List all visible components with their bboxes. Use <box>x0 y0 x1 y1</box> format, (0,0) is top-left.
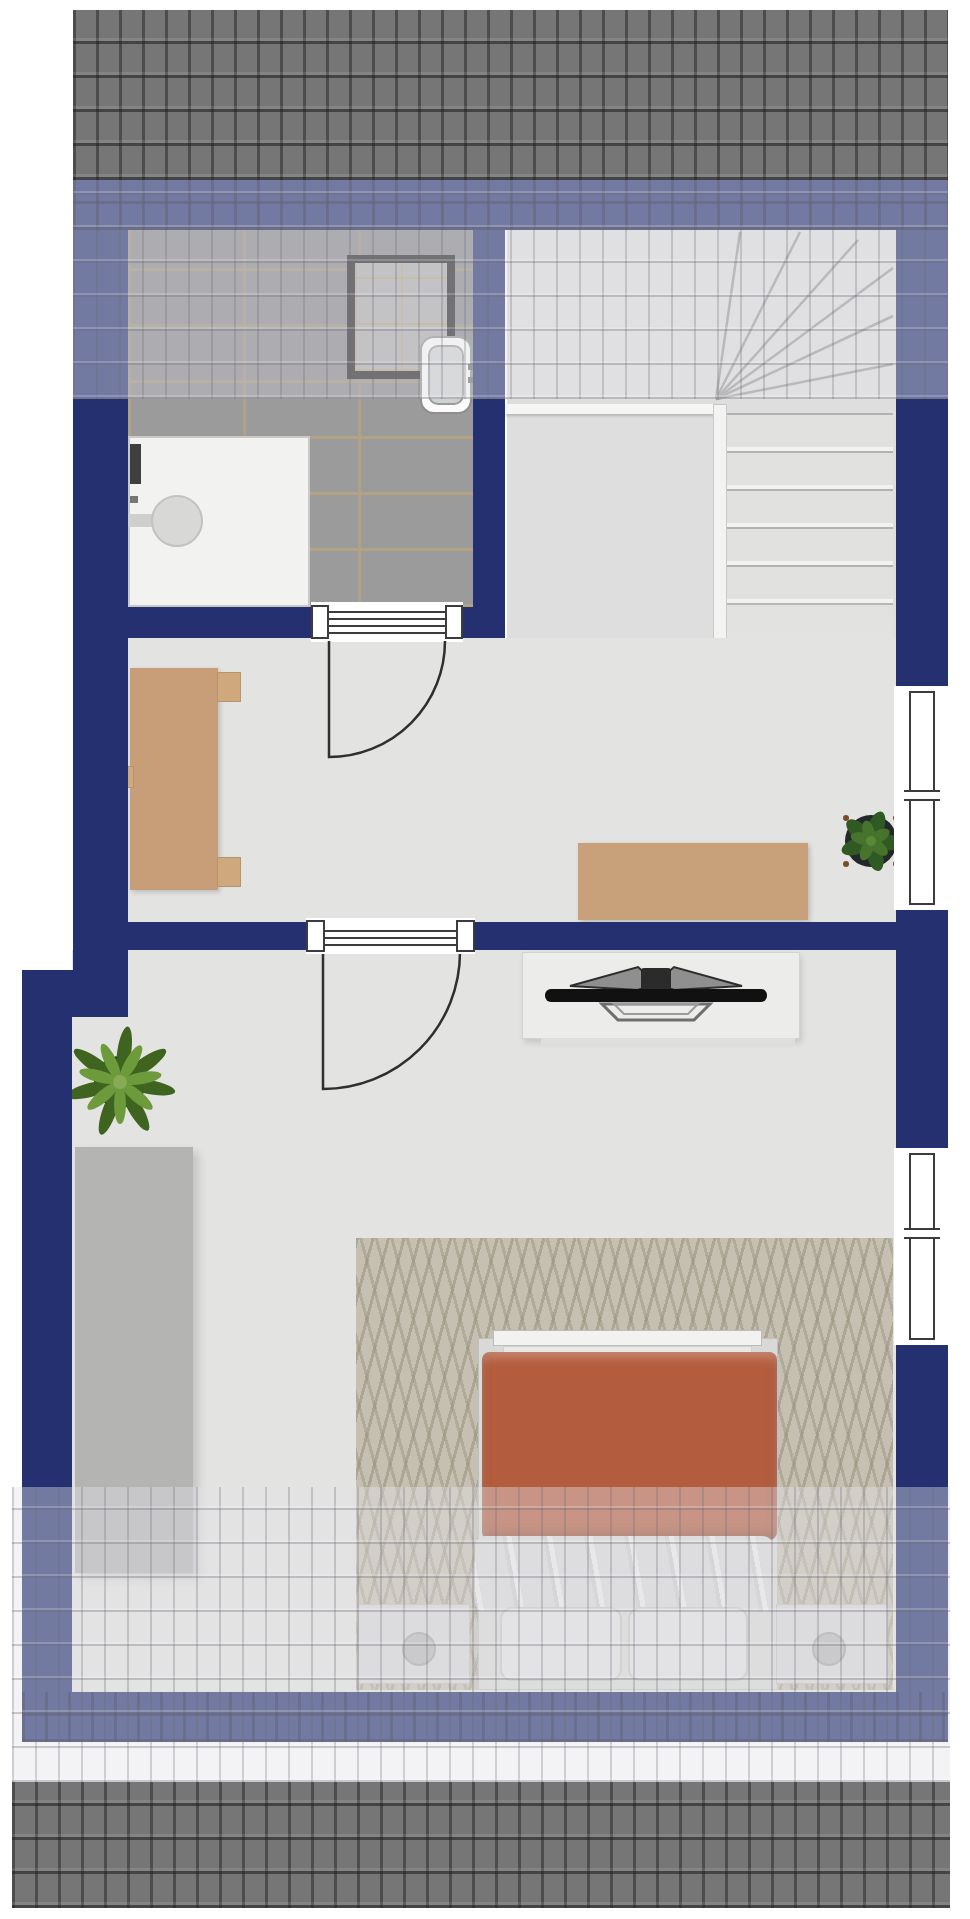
bedroom-door-jamb-right <box>456 920 475 952</box>
roof-overlay-bottom <box>12 1487 950 1782</box>
roof-top <box>73 10 948 180</box>
floor-plan <box>0 0 970 1919</box>
roof-overlay-top <box>73 180 948 399</box>
bedroom-door-threshold <box>306 918 475 954</box>
door-threshold-bars <box>324 926 457 946</box>
bedroom-door-jamb-left <box>306 920 325 952</box>
roof-bottom <box>12 1782 950 1908</box>
